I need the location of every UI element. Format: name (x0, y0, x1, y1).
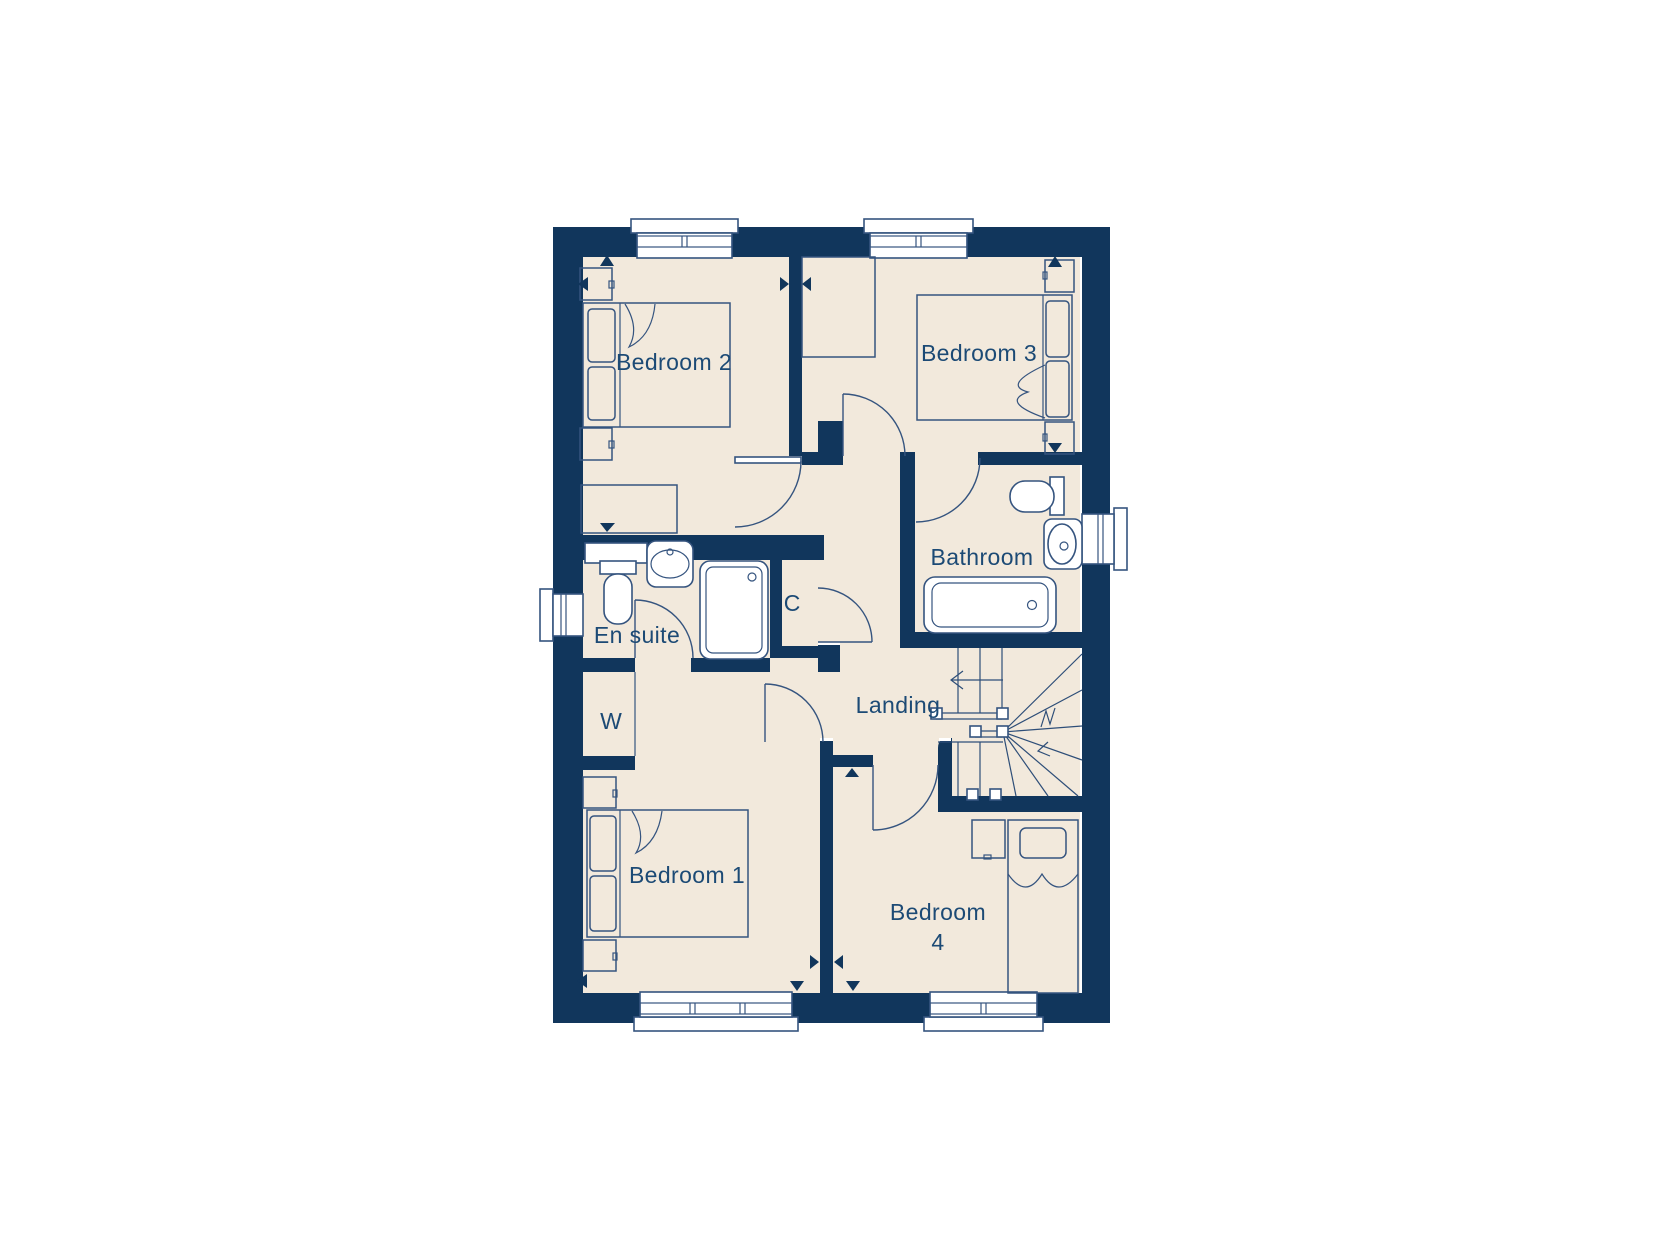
window-icon (864, 219, 973, 258)
window-icon (631, 219, 738, 258)
wash-basin-icon (647, 541, 693, 587)
wall-stair-south (938, 796, 1082, 812)
room-label-cupboard: C (784, 590, 801, 616)
room-label-bedroom4-line1: Bedroom (890, 899, 986, 925)
door-leaf (735, 457, 801, 463)
wall-cupboard-stub (818, 642, 840, 672)
wall-shower-cupboard (770, 560, 782, 650)
wall-cap (820, 738, 833, 741)
room-label-bedroom4-line2: 4 (931, 929, 944, 955)
wall-cupboard-south (770, 646, 824, 658)
window-icon (1082, 508, 1127, 570)
window-icon (924, 992, 1043, 1031)
floor-plan-drawing: Bedroom 2 Bedroom 3 Bathroom En suite C … (0, 0, 1667, 1250)
wall-bedroom2-east (789, 257, 802, 456)
wall-bathroom-south (900, 632, 1082, 648)
wall-bathroom-west (900, 452, 915, 648)
room-label-bedroom2: Bedroom 2 (616, 349, 732, 375)
wall-ensuite-south-b (691, 658, 770, 672)
room-label-ensuite: En suite (594, 622, 680, 648)
wall-wardrobe-south (583, 756, 635, 770)
wall-stub-hall (818, 421, 843, 455)
room-label-wardrobe: W (600, 708, 622, 734)
wall-ensuite-south-a (583, 658, 635, 672)
wall-bedroom4-stub (833, 755, 873, 767)
toilet-icon (1010, 477, 1064, 515)
floor-plan-page: Bedroom 2 Bedroom 3 Bathroom En suite C … (0, 0, 1667, 1250)
wall-bedroom3-south-a (802, 452, 843, 465)
wall-cap (939, 738, 951, 741)
wall-bedroom1-bedroom4 (820, 738, 833, 993)
room-label-bedroom1: Bedroom 1 (629, 862, 745, 888)
wash-basin-icon (1044, 519, 1082, 569)
window-icon (540, 589, 583, 641)
room-label-bathroom: Bathroom (931, 544, 1034, 570)
toilet-icon (600, 561, 636, 624)
window-icon (634, 992, 798, 1031)
room-label-landing: Landing (856, 692, 941, 718)
bathtub-icon (924, 577, 1056, 633)
vanity-counter (585, 543, 647, 563)
room-label-bedroom3: Bedroom 3 (921, 340, 1037, 366)
shower-tray-icon (700, 561, 768, 659)
